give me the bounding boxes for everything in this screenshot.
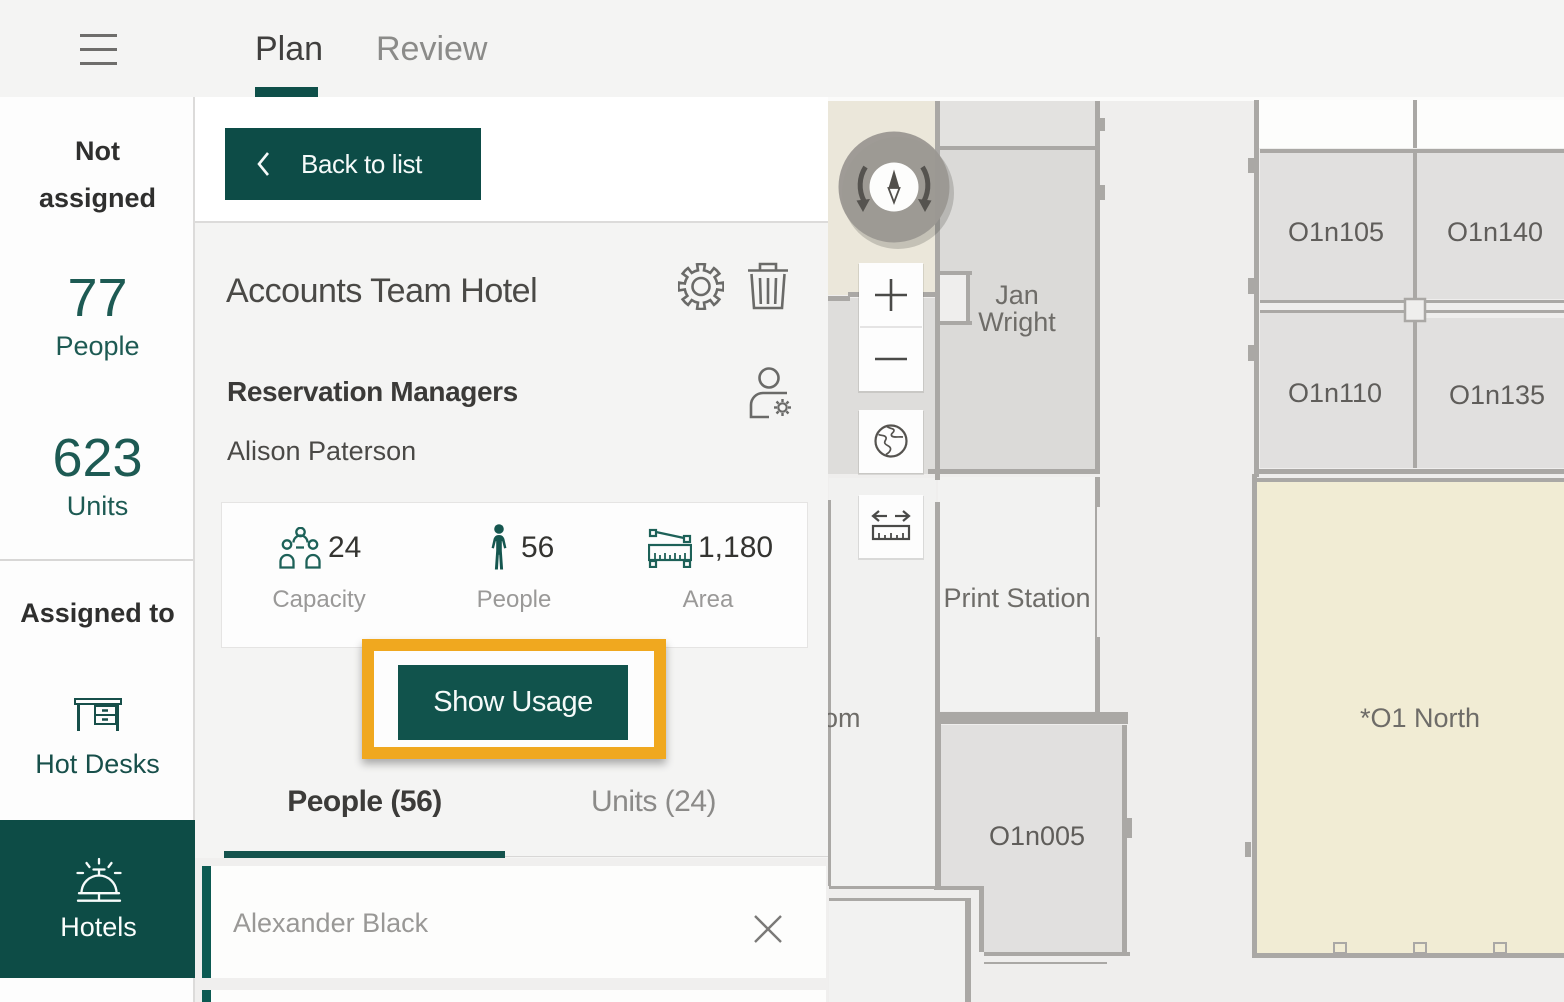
svg-text:Wright: Wright [978, 307, 1056, 337]
svg-text:*O1 North: *O1 North [1360, 703, 1480, 733]
svg-text:Jan: Jan [995, 280, 1039, 310]
svg-text:Print Station: Print Station [943, 583, 1090, 613]
svg-text:O1n105: O1n105 [1288, 217, 1384, 247]
svg-text:O1n140: O1n140 [1447, 217, 1543, 247]
svg-text:O1n135: O1n135 [1449, 380, 1545, 410]
svg-text:O1n005: O1n005 [989, 821, 1085, 851]
svg-text:om: om [828, 703, 861, 733]
svg-text:O1n110: O1n110 [1288, 378, 1382, 408]
